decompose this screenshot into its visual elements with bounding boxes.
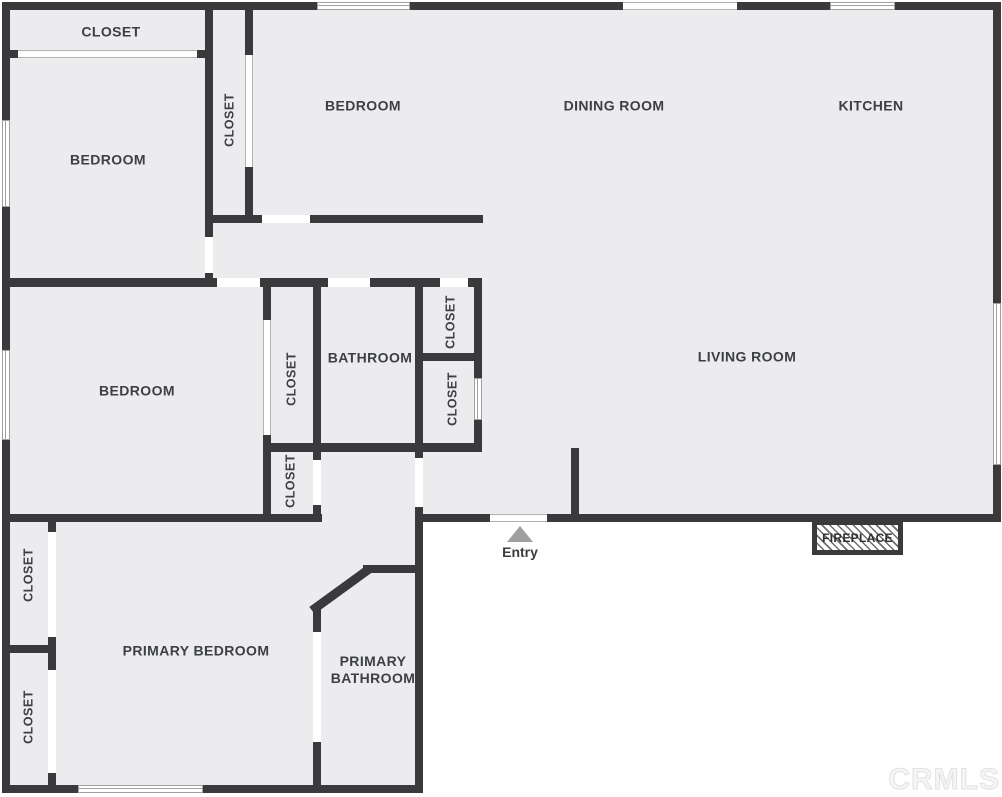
window — [78, 785, 203, 793]
room-label-bedroom-top-left: BEDROOM — [70, 152, 146, 169]
fireplace-label: FIREPLACE — [822, 531, 893, 545]
room-label-primary-bedroom: PRIMARY BEDROOM — [123, 643, 270, 660]
wall — [415, 353, 482, 361]
room-label-dining-room: DINING ROOM — [564, 98, 665, 115]
entry-arrow-icon — [507, 526, 533, 542]
door-opening — [262, 215, 310, 223]
wall — [474, 287, 482, 452]
door-opening — [313, 632, 321, 742]
floorplan: FIREPLACE Entry CLOSETBEDROOMCLOSETBEDRO… — [0, 0, 1002, 797]
room-label-primary-bathroom: PRIMARY BATHROOM — [331, 653, 416, 687]
wall — [305, 443, 482, 452]
wall — [2, 2, 10, 522]
door-opening — [217, 278, 260, 287]
window — [317, 2, 410, 10]
wall — [2, 785, 423, 793]
door-opening — [328, 278, 370, 287]
window — [474, 378, 482, 420]
room-label-bedroom-middle-left: BEDROOM — [99, 383, 175, 400]
fireplace: FIREPLACE — [812, 520, 903, 555]
door-opening — [440, 278, 468, 287]
closet-opening — [18, 50, 197, 58]
room-label-closet-bottom-left-2: CLOSET — [22, 690, 37, 744]
wall — [363, 565, 423, 573]
door-opening — [205, 237, 213, 273]
room-label-closet-bottom-left-1: CLOSET — [22, 548, 37, 602]
wall — [2, 514, 10, 793]
entry-door-opening — [490, 514, 547, 522]
closet-opening — [263, 320, 271, 435]
entry-label: Entry — [502, 544, 538, 560]
room-label-living-room: LIVING ROOM — [698, 349, 797, 366]
room-label-closet-below-bathroom: CLOSET — [284, 454, 299, 508]
sliding-door-opening — [623, 2, 737, 10]
watermark: CRMLS — [888, 763, 1000, 797]
wall — [205, 10, 213, 223]
window — [2, 350, 10, 440]
room-label-closet-tall: CLOSET — [223, 93, 238, 147]
room-label-closet-hall-lower: CLOSET — [446, 372, 461, 426]
window — [2, 120, 10, 207]
room-label-closet-bedroom: CLOSET — [285, 352, 300, 406]
room-label-bedroom-top-middle: BEDROOM — [325, 98, 401, 115]
wall — [205, 215, 483, 223]
room-label-closet-hall-upper: CLOSET — [444, 295, 459, 349]
window — [993, 303, 1001, 465]
floor-main — [2, 2, 1001, 522]
wall — [2, 645, 56, 653]
door-opening — [415, 458, 423, 507]
door-opening — [48, 532, 56, 637]
room-label-closet-top-left: CLOSET — [81, 24, 140, 41]
room-label-bathroom: BATHROOM — [328, 350, 413, 367]
closet-opening — [245, 55, 253, 167]
wall — [571, 448, 579, 522]
room-label-kitchen: KITCHEN — [838, 98, 903, 115]
door-opening — [313, 460, 321, 505]
wall — [415, 287, 423, 443]
window — [830, 2, 895, 10]
door-opening — [48, 670, 56, 773]
